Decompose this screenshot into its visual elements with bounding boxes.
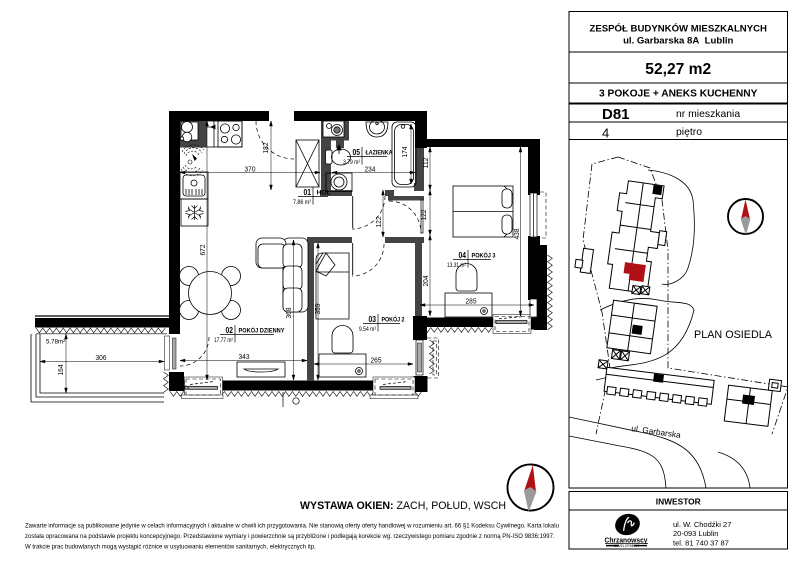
svg-text:tel. 81 740 37 87: tel. 81 740 37 87 <box>673 539 729 548</box>
svg-text:13.31 m²: 13.31 m² <box>447 262 466 269</box>
svg-text:112: 112 <box>423 157 430 168</box>
svg-text:piętro: piętro <box>676 127 702 138</box>
svg-text:Zawarte informacje są publikow: Zawarte informacje są publikowane jedyni… <box>25 524 559 530</box>
svg-text:03: 03 <box>369 315 377 324</box>
svg-text:285: 285 <box>466 299 477 306</box>
svg-text:306: 306 <box>96 355 107 362</box>
svg-text:368: 368 <box>286 307 293 318</box>
svg-text:234: 234 <box>365 167 376 174</box>
svg-text:01: 01 <box>304 188 312 197</box>
svg-text:została opracowana na podstawi: została opracowana na podstawie projektu… <box>25 534 555 540</box>
svg-text:ul. Garbarska: ul. Garbarska <box>631 423 682 440</box>
svg-text:265: 265 <box>371 358 382 365</box>
svg-text:ul. W. Chodźki 27: ul. W. Chodźki 27 <box>673 520 731 529</box>
svg-text:122: 122 <box>421 209 428 220</box>
svg-text:INWESTOR: INWESTOR <box>656 497 701 507</box>
svg-text:17.77 m²: 17.77 m² <box>214 337 233 344</box>
svg-text:52,27 m2: 52,27 m2 <box>645 61 711 78</box>
svg-text:3.79 m²: 3.79 m² <box>343 159 360 166</box>
svg-text:343: 343 <box>239 354 250 361</box>
svg-text:WYSTAWA OKIEN: ZACH, POŁUD, WS: WYSTAWA OKIEN: ZACH, POŁUD, WSCH <box>300 500 506 512</box>
svg-text:04: 04 <box>459 251 467 260</box>
svg-text:4: 4 <box>602 126 609 141</box>
svg-text:5.78m²: 5.78m² <box>46 339 65 346</box>
svg-text:164: 164 <box>58 364 65 375</box>
svg-text:DEVELOPMENT: DEVELOPMENT <box>614 544 640 548</box>
svg-text:182: 182 <box>263 142 270 153</box>
svg-text:02: 02 <box>226 326 234 335</box>
svg-text:D81: D81 <box>602 106 630 123</box>
svg-text:7.86 m²: 7.86 m² <box>293 199 311 206</box>
svg-text:359: 359 <box>315 303 322 314</box>
svg-text:ul. Garbarska 8A Lublin: ul. Garbarska 8A Lublin <box>623 36 733 47</box>
svg-text:POKÓJ 3: POKÓJ 3 <box>472 251 496 260</box>
svg-text:05: 05 <box>353 148 361 157</box>
svg-text:204: 204 <box>423 275 430 286</box>
svg-text:ŁAZIENKA: ŁAZIENKA <box>366 150 393 157</box>
svg-text:672: 672 <box>200 244 207 255</box>
svg-text:HOL: HOL <box>317 190 331 197</box>
svg-text:370: 370 <box>245 167 256 174</box>
svg-text:ZESPÓŁ BUDYNKÓW MIESZKALNYCH: ZESPÓŁ BUDYNKÓW MIESZKALNYCH <box>590 23 768 35</box>
svg-text:PLAN OSIEDLA: PLAN OSIEDLA <box>694 329 773 341</box>
svg-text:174: 174 <box>402 146 409 157</box>
svg-text:3 POKOJE + ANEKS KUCHENNY: 3 POKOJE + ANEKS KUCHENNY <box>599 89 758 100</box>
svg-text:9.54 m²: 9.54 m² <box>359 326 376 333</box>
svg-text:POKÓJ 2: POKÓJ 2 <box>382 315 405 324</box>
svg-text:122: 122 <box>376 216 383 227</box>
svg-text:POKÓJ DZIENNY: POKÓJ DZIENNY <box>239 326 286 335</box>
svg-text:438: 438 <box>514 228 521 239</box>
svg-text:nr mieszkania: nr mieszkania <box>676 109 740 120</box>
svg-text:20-093 Lublin: 20-093 Lublin <box>673 529 718 538</box>
svg-text:W trakcie prac budowlanych mog: W trakcie prac budowlanych mogą wystąpić… <box>25 545 316 551</box>
